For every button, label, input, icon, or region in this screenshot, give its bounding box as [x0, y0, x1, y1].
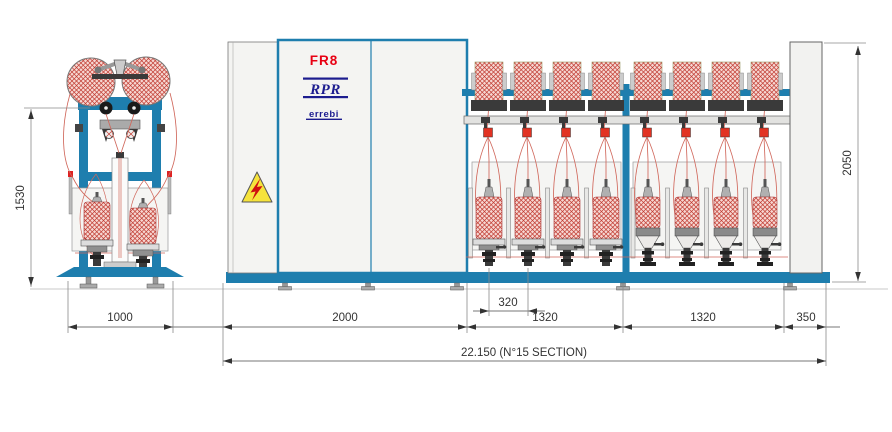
- twisting-machine-drawing: FR8 RPR errebi: [0, 0, 892, 432]
- takeup-package: [588, 62, 624, 111]
- guide-bar: [464, 116, 790, 124]
- thread-guide-rod: [69, 176, 72, 214]
- separator-plate: [546, 188, 550, 258]
- dim-label: 320: [498, 297, 517, 309]
- cabinet-side-panel: [228, 42, 278, 273]
- leveling-foot: [362, 283, 375, 290]
- arm-pivot: [139, 67, 146, 74]
- post-clamp: [75, 124, 83, 132]
- technical-drawing-page: FR8 RPR errebi: [0, 0, 892, 432]
- dim-section-b: 1320: [690, 312, 716, 324]
- brand-logo-text: RPR: [309, 82, 341, 98]
- machine-end-view: [56, 57, 184, 288]
- separator-plate: [585, 188, 589, 258]
- cabinet-body: [278, 40, 467, 273]
- takeup-package: [669, 62, 705, 111]
- sub-underline: [306, 119, 342, 120]
- separator-plate: [705, 188, 709, 258]
- leveling-foot: [80, 277, 97, 288]
- leveling-foot: [279, 283, 292, 290]
- arm-pivot: [95, 67, 102, 74]
- post-clamp: [157, 124, 165, 132]
- separator-plate: [507, 188, 511, 258]
- takeup-package: [708, 62, 744, 111]
- dim-section-a: 1320: [532, 312, 558, 324]
- guide-plate: [100, 120, 140, 129]
- takeup-package: [471, 62, 507, 111]
- leveling-foot: [451, 283, 464, 290]
- separator-plate: [469, 188, 473, 258]
- logo-overline: [303, 78, 348, 80]
- spinning-sections: [462, 62, 790, 272]
- dim-label: 1530: [15, 185, 27, 211]
- takeup-package: [630, 62, 666, 111]
- end-frame-panel: [790, 42, 822, 273]
- dim-machine-height: 2050: [824, 43, 866, 282]
- leg-wedge: [166, 267, 184, 277]
- center-column: [112, 158, 128, 262]
- model-label: FR8: [310, 53, 339, 68]
- leveling-foot: [147, 277, 164, 288]
- section-post: [623, 84, 630, 272]
- separator-plate: [744, 188, 748, 258]
- leveling-foot: [784, 283, 797, 290]
- control-cabinet: FR8 RPR errebi: [228, 40, 467, 273]
- leg-beam: [74, 267, 166, 277]
- dim-label: 2050: [842, 150, 854, 176]
- brand-sub-text: errebi: [309, 109, 339, 120]
- separator-plate: [666, 188, 670, 258]
- drive-bar: [92, 74, 148, 79]
- takeup-package: [549, 62, 585, 111]
- dim-tailstock-width: 350: [796, 312, 815, 324]
- dim-label: 22.150 (N°15 SECTION): [461, 347, 587, 359]
- dim-bottom-chain: 1000 2000 1320 1320 350: [68, 281, 840, 366]
- dim-headstock-width: 2000: [332, 312, 358, 324]
- takeup-package: [747, 62, 783, 111]
- column-cap: [116, 152, 124, 158]
- leg-wedge: [56, 267, 74, 277]
- takeup-package: [510, 62, 546, 111]
- roller-axle: [104, 106, 108, 110]
- dim-total-length: 22.150 (N°15 SECTION): [223, 347, 826, 364]
- thread-guide-rod: [168, 176, 171, 214]
- dim-end-view-width: 1000: [107, 312, 133, 324]
- roller-axle: [132, 106, 136, 110]
- logo-underline: [303, 96, 348, 98]
